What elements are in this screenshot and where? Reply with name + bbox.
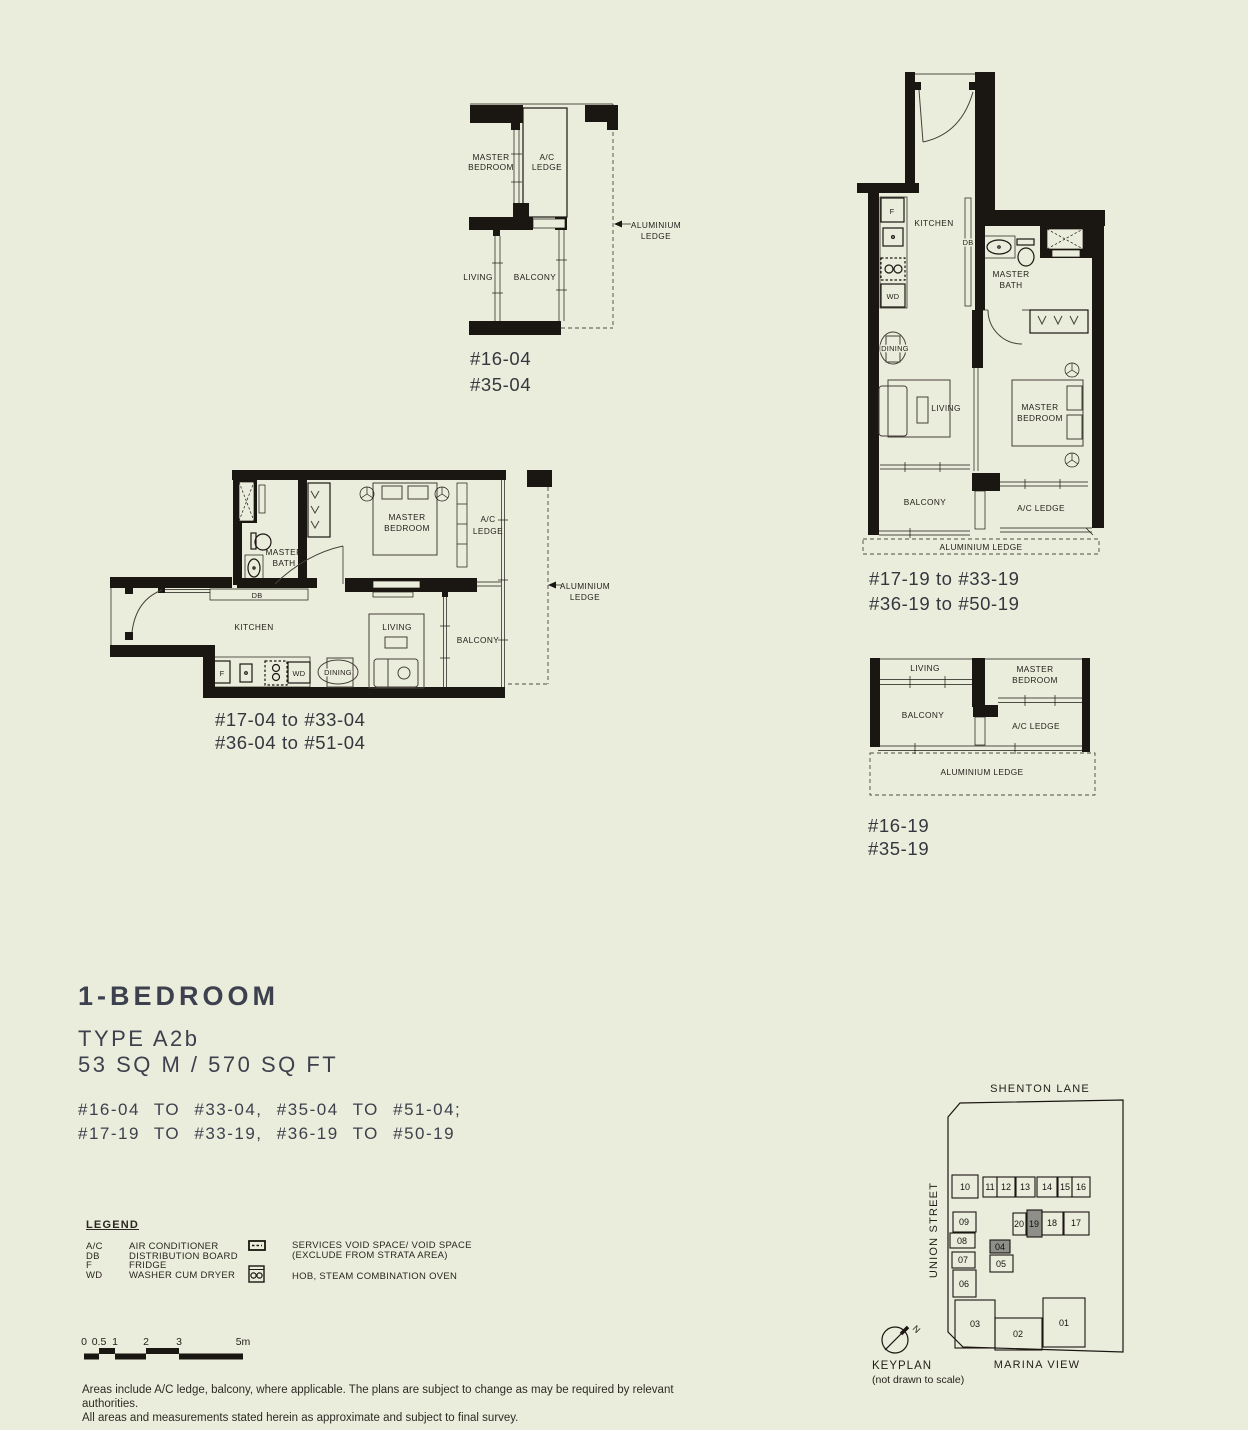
room-label-dining: DINING bbox=[881, 344, 909, 353]
scale-tick: 0.5 bbox=[92, 1336, 107, 1348]
room-label-ac-ledge-2: LEDGE bbox=[532, 162, 562, 172]
label-fridge: F bbox=[220, 669, 225, 678]
room-label-master-bath: MASTER bbox=[266, 547, 303, 557]
room-label-ac-ledge: A/C LEDGE bbox=[1012, 721, 1060, 731]
page-title: 1-BEDROOM bbox=[78, 982, 461, 1010]
keyplan-unit-20: 20 bbox=[1014, 1219, 1024, 1229]
street-label-left: UNION STREET bbox=[928, 1182, 940, 1278]
scale-bar-segments bbox=[84, 1348, 243, 1360]
room-label-master-bath-2: BATH bbox=[999, 280, 1022, 290]
sofa bbox=[879, 386, 907, 436]
arrow-left-icon bbox=[548, 582, 556, 589]
legend-abbreviations: A/C AIR CONDITIONER DB DISTRIBUTION BOAR… bbox=[86, 1242, 238, 1281]
keyplan-unit-15: 15 bbox=[1060, 1182, 1070, 1192]
keyplan-unit-05: 05 bbox=[996, 1259, 1006, 1269]
annotation-aluminium-ledge-2: LEDGE bbox=[641, 231, 671, 241]
annotation-aluminium-ledge-2: LEDGE bbox=[570, 592, 600, 602]
ceiling-fan-icon bbox=[1065, 453, 1079, 467]
room-label-living: LIVING bbox=[463, 272, 493, 282]
room-label-master-bath: MASTER bbox=[993, 269, 1030, 279]
unit-range-label: #35-19 bbox=[868, 838, 929, 859]
room-label-ac-ledge: A/C LEDGE bbox=[1017, 503, 1065, 513]
scale-tick: 2 bbox=[143, 1336, 149, 1348]
north-label: N bbox=[911, 1323, 923, 1335]
legend-abbr: WD bbox=[86, 1271, 129, 1281]
label-db: DB bbox=[252, 591, 263, 600]
room-label-living: LIVING bbox=[382, 622, 412, 632]
unit-range-label: #36-04 to #51-04 bbox=[215, 732, 366, 753]
scale-tick: 0 bbox=[81, 1336, 87, 1348]
keyplan-unit-13: 13 bbox=[1020, 1182, 1030, 1192]
legend-symbol-label-line: (EXCLUDE FROM STRATA AREA) bbox=[292, 1251, 552, 1261]
keyplan-sublabel: (not drawn to scale) bbox=[872, 1374, 964, 1386]
keyplan-unit-07: 07 bbox=[958, 1255, 968, 1265]
room-label-kitchen: KITCHEN bbox=[914, 218, 953, 228]
room-label-balcony: BALCONY bbox=[902, 710, 945, 720]
room-label-master-bath-2: BATH bbox=[272, 558, 295, 568]
legend: LEGEND A/C AIR CONDITIONER DB DISTRIBUTI… bbox=[86, 1219, 686, 1299]
room-label-dining: DINING bbox=[324, 668, 352, 677]
room-label-master-bedroom-2: BEDROOM bbox=[468, 162, 514, 172]
label-washer-dryer: WD bbox=[887, 292, 900, 301]
legend-heading: LEGEND bbox=[86, 1219, 686, 1231]
legend-symbol-row: HOB, STEAM COMBINATION OVEN bbox=[248, 1265, 265, 1286]
legend-symbol-row: SERVICES VOID SPACE/ VOID SPACE (EXCLUDE… bbox=[248, 1240, 266, 1254]
room-label-master-bedroom-2: BEDROOM bbox=[1012, 675, 1058, 685]
floorplan-unit-04: MASTER BATH DB KITCHEN F WD DINING LIVIN… bbox=[98, 458, 693, 758]
room-label-master-bedroom: MASTER bbox=[1022, 402, 1059, 412]
street-label-top: SHENTON LANE bbox=[990, 1083, 1090, 1095]
legend-abbr: DB bbox=[86, 1252, 129, 1262]
unit-range-label: #35-04 bbox=[470, 374, 531, 395]
sofa bbox=[374, 659, 418, 687]
scale-bar: 0 0.5 1 2 3 5m bbox=[80, 1334, 270, 1366]
unit-list-line: #17-19 TO #33-19, #36-19 TO #50-19 bbox=[78, 1122, 461, 1146]
label-fridge: F bbox=[890, 207, 895, 216]
room-label-balcony: BALCONY bbox=[514, 272, 557, 282]
room-label-ac-ledge: A/C bbox=[539, 152, 554, 162]
keyplan-units: 10 11 12 13 14 15 16 20 19 18 17 09 08 0… bbox=[950, 1175, 1090, 1350]
room-label-living: LIVING bbox=[931, 403, 961, 413]
unit-type-label: TYPE A2b bbox=[78, 1026, 461, 1052]
keyplan-unit-18: 18 bbox=[1047, 1218, 1057, 1228]
keyplan-unit-17: 17 bbox=[1071, 1218, 1081, 1228]
legend-symbol-label: HOB, STEAM COMBINATION OVEN bbox=[292, 1272, 552, 1282]
plan-walls bbox=[110, 470, 552, 698]
room-label-ac-ledge-2: LEDGE bbox=[473, 526, 503, 536]
keyplan-unit-06: 06 bbox=[959, 1279, 969, 1289]
room-label-master-bedroom: MASTER bbox=[389, 512, 426, 522]
legend-label: WASHER CUM DRYER bbox=[129, 1271, 238, 1281]
annotation-aluminium-ledge: ALUMINIUM LEDGE bbox=[941, 767, 1024, 777]
keyplan-unit-01: 01 bbox=[1059, 1318, 1069, 1328]
ceiling-fan-icon bbox=[360, 487, 374, 501]
disclaimer: Areas include A/C ledge, balcony, where … bbox=[82, 1383, 722, 1425]
unit-range-label: #36-19 to #50-19 bbox=[869, 593, 1020, 614]
scale-tick: 5m bbox=[236, 1336, 251, 1348]
unit-range-label: #17-04 to #33-04 bbox=[215, 709, 366, 730]
keyplan-unit-09: 09 bbox=[959, 1217, 969, 1227]
keyplan-unit-03: 03 bbox=[970, 1319, 980, 1329]
services-void-icon bbox=[248, 1240, 266, 1251]
legend-row: WD WASHER CUM DRYER bbox=[86, 1271, 238, 1281]
unit-range-label: #16-04 bbox=[470, 348, 531, 369]
keyplan-unit-16: 16 bbox=[1076, 1182, 1086, 1192]
room-label-kitchen: KITCHEN bbox=[234, 622, 273, 632]
keyplan-unit-19: 19 bbox=[1029, 1219, 1039, 1229]
street-label-bottom: MARINA VIEW bbox=[994, 1359, 1081, 1371]
floorplan-unit-19: KITCHEN DB F WD MASTER BATH DINING LIVIN… bbox=[855, 58, 1115, 618]
legend-symbol-label: SERVICES VOID SPACE/ VOID SPACE (EXCLUDE… bbox=[292, 1241, 552, 1260]
room-label-ac-ledge: A/C bbox=[480, 514, 495, 524]
annotation-aluminium-ledge: ALUMINIUM bbox=[560, 581, 610, 591]
scale-tick: 1 bbox=[112, 1336, 118, 1348]
disclaimer-line: Areas include A/C ledge, balcony, where … bbox=[82, 1383, 722, 1411]
room-label-master-bedroom: MASTER bbox=[1017, 664, 1054, 674]
room-label-living: LIVING bbox=[910, 663, 940, 673]
label-db: DB bbox=[963, 238, 974, 247]
north-compass-icon: N bbox=[882, 1323, 922, 1353]
unit-list: #16-04 TO #33-04, #35-04 TO #51-04; #17-… bbox=[78, 1098, 461, 1146]
keyplan: SHENTON LANE UNION STREET MARINA VIEW 10… bbox=[860, 1078, 1215, 1400]
armchair bbox=[398, 667, 410, 679]
annotation-aluminium-ledge: ALUMINIUM bbox=[631, 220, 681, 230]
plan-lines bbox=[470, 104, 631, 328]
unit-range-label: #16-19 bbox=[868, 815, 929, 836]
keyplan-unit-08: 08 bbox=[957, 1236, 967, 1246]
tv-console bbox=[917, 397, 928, 423]
unit-area-label: 53 SQ M / 570 SQ FT bbox=[78, 1052, 461, 1078]
title-block: 1-BEDROOM TYPE A2b 53 SQ M / 570 SQ FT #… bbox=[78, 982, 461, 1146]
keyplan-unit-04: 04 bbox=[995, 1242, 1005, 1252]
room-label-master-bedroom-2: BEDROOM bbox=[1017, 413, 1063, 423]
unit-range-label: #17-19 to #33-19 bbox=[869, 568, 1020, 589]
arrow-left-icon bbox=[614, 221, 622, 228]
room-label-balcony: BALCONY bbox=[904, 497, 947, 507]
keyplan-unit-10: 10 bbox=[960, 1182, 970, 1192]
room-label-master-bedroom: MASTER bbox=[473, 152, 510, 162]
scale-tick: 3 bbox=[176, 1336, 182, 1348]
disclaimer-line: All areas and measurements stated herein… bbox=[82, 1411, 722, 1425]
annotation-aluminium-ledge: ALUMINIUM LEDGE bbox=[940, 542, 1023, 552]
tv-console bbox=[385, 637, 407, 648]
floorplan-partial-stack-19: LIVING MASTER BEDROOM BALCONY A/C LEDGE … bbox=[855, 645, 1105, 860]
floorplan-brochure-page: MASTER BEDROOM A/C LEDGE LIVING BALCONY … bbox=[0, 0, 1248, 1430]
room-label-master-bedroom-2: BEDROOM bbox=[384, 523, 430, 533]
hob-icon bbox=[248, 1265, 265, 1283]
unit-list-line: #16-04 TO #33-04, #35-04 TO #51-04; bbox=[78, 1098, 461, 1122]
keyplan-unit-11: 11 bbox=[985, 1182, 994, 1192]
keyplan-unit-02: 02 bbox=[1013, 1329, 1023, 1339]
keyplan-unit-12: 12 bbox=[1001, 1182, 1011, 1192]
label-washer-dryer: WD bbox=[293, 669, 306, 678]
keyplan-unit-14: 14 bbox=[1042, 1182, 1052, 1192]
keyplan-label: KEYPLAN bbox=[872, 1360, 932, 1372]
room-label-balcony: BALCONY bbox=[457, 635, 500, 645]
floorplan-partial-stack-04: MASTER BEDROOM A/C LEDGE LIVING BALCONY … bbox=[435, 88, 690, 403]
ceiling-fan-icon bbox=[1065, 363, 1079, 377]
